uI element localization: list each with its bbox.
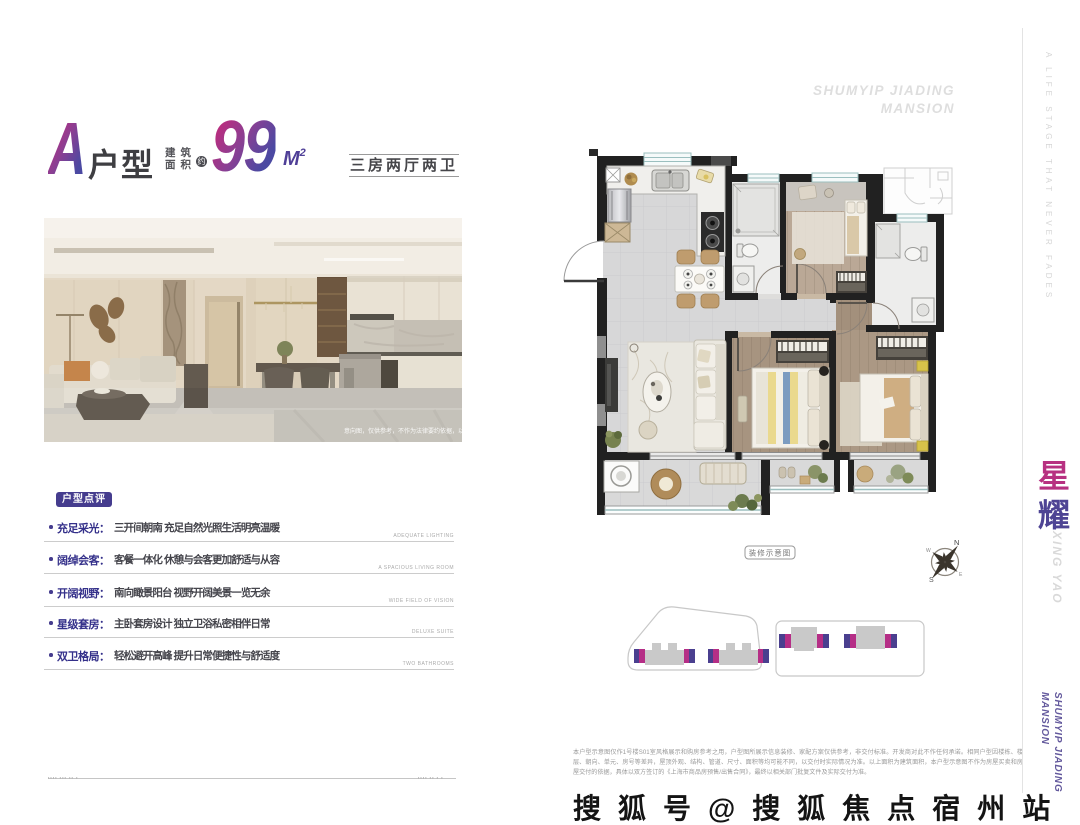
svg-text:E: E [959,572,963,578]
svg-text:W: W [926,548,931,554]
svg-text:意向图，仅供参考，不作为法律要约依据，以实际交付为准: 意向图，仅供参考，不作为法律要约依据，以实际交付为准 [344,427,462,435]
svg-text:N: N [954,538,959,547]
svg-text:S: S [929,577,934,584]
svg-text:装修示意图: 装修示意图 [749,548,792,558]
